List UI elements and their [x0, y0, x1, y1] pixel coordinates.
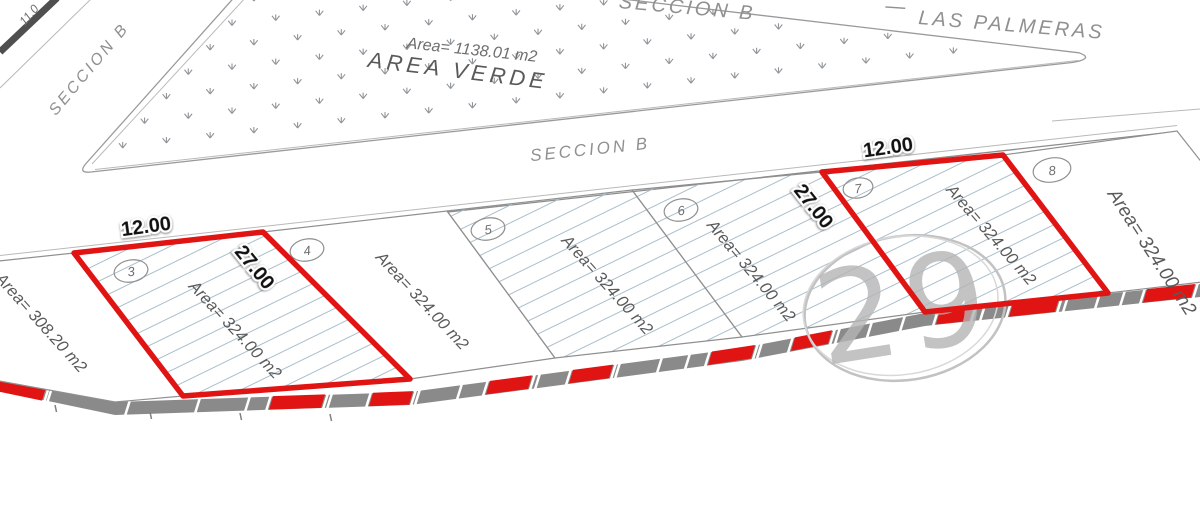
- street-label-seccion-b-road: SECCION B: [529, 134, 651, 165]
- lot-7-front-dim: 12.00: [862, 134, 915, 163]
- street-label-seccion-b-left: SECCION B: [46, 20, 133, 119]
- plat-drawing: 11.0 SECCION B SECCION B — LAS PALMERAS …: [0, 0, 1200, 507]
- road-edge-line-right: [1052, 109, 1200, 121]
- dim-topleft-label: 11.0: [16, 2, 42, 28]
- street-dash: —: [884, 0, 909, 19]
- plat-map: 11.0 SECCION B SECCION B — LAS PALMERAS …: [0, 0, 1200, 507]
